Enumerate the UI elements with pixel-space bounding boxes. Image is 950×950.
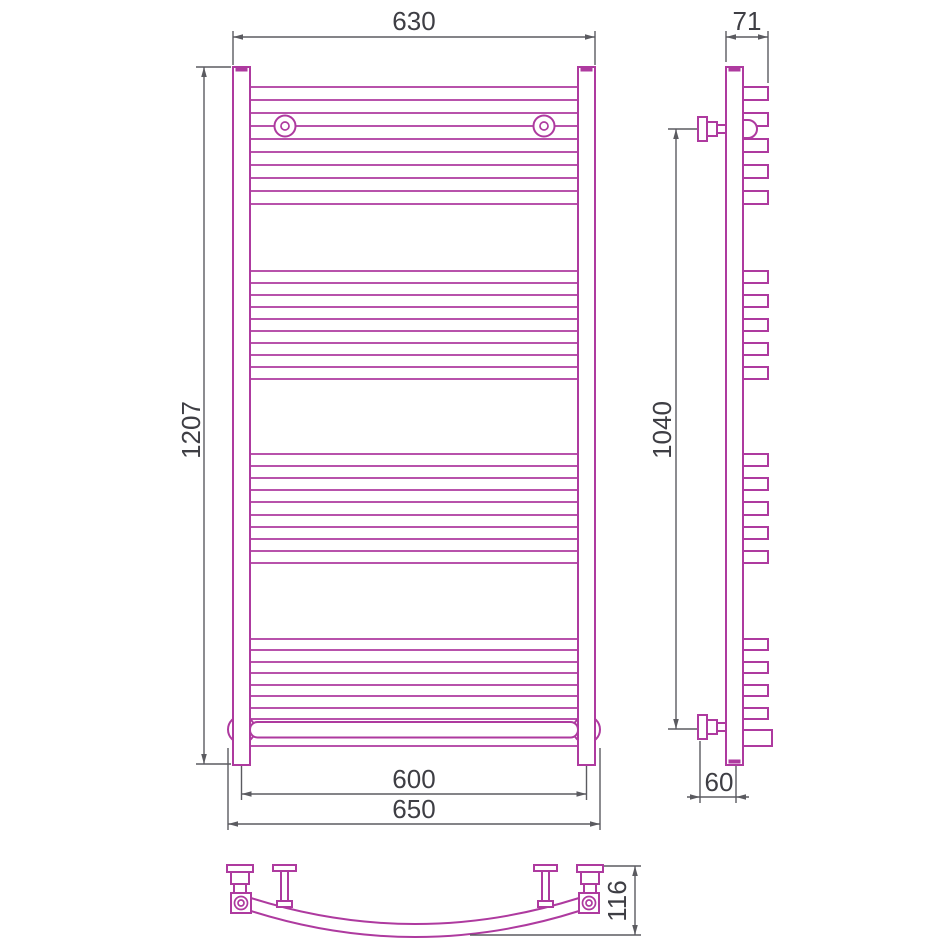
rail-stub <box>741 639 768 650</box>
dim-label-height: 1207 <box>176 401 206 459</box>
front-view: 630 1207 600 650 <box>176 6 600 824</box>
rail-stubs <box>741 87 772 746</box>
rail-stub <box>741 271 768 283</box>
dim-label-mounting-height: 1040 <box>647 401 677 459</box>
rail-stub <box>741 708 768 719</box>
radiator-technical-drawing: 630 1207 600 650 71 1040 60 <box>0 0 950 950</box>
bracket-circle <box>534 116 555 137</box>
right-corner-fitting <box>577 865 603 913</box>
dim-label-bottom-outer-width: 650 <box>392 794 435 824</box>
side-post-bottom-cap <box>729 760 741 764</box>
bracket-circle <box>275 116 296 137</box>
right-post-cap <box>581 68 593 72</box>
left-corner-fitting <box>227 865 253 913</box>
rail-stub <box>741 191 768 204</box>
curved-rail-arc <box>251 898 579 937</box>
technical-drawing-page: 630 1207 600 650 71 1040 60 <box>0 0 950 950</box>
rail-stub <box>741 502 768 515</box>
rail-stub <box>741 662 768 673</box>
dim-label-top-width: 630 <box>392 6 435 36</box>
side-post-top-cap <box>729 68 741 72</box>
dim-label-arc-depth: 116 <box>602 880 632 921</box>
bottom-view: 116 <box>227 865 632 937</box>
upper-wall-bracket <box>698 117 727 141</box>
dimension-lines <box>196 31 768 935</box>
rail-stub <box>741 478 768 490</box>
rail-stub <box>741 295 768 307</box>
rail-stub <box>741 685 768 696</box>
left-post-cap <box>236 68 248 72</box>
left-valve-stem <box>273 865 296 907</box>
side-post <box>726 67 743 765</box>
right-valve-stem <box>534 865 557 907</box>
rail-stub <box>741 551 768 563</box>
rail-stub <box>741 527 768 539</box>
rail-stub <box>741 367 768 379</box>
bottom-collector-tube <box>250 722 578 738</box>
dim-label-depth: 71 <box>733 6 762 36</box>
rail-stub <box>741 87 768 100</box>
collector-stub <box>741 730 772 746</box>
rail-stub <box>741 165 768 178</box>
side-view: 71 1040 60 <box>647 6 772 797</box>
left-post <box>233 67 250 765</box>
rail-stub <box>741 319 768 331</box>
dim-label-bottom-inner-width: 600 <box>392 764 435 794</box>
dim-label-wall-offset: 60 <box>705 767 734 797</box>
upper-bracket-clamp <box>743 120 757 138</box>
rail-stub <box>741 343 768 355</box>
lower-wall-bracket <box>698 715 727 739</box>
rail-stub <box>741 139 768 152</box>
right-post <box>578 67 595 765</box>
rail-stub <box>741 454 768 466</box>
towel-rails <box>250 87 578 719</box>
